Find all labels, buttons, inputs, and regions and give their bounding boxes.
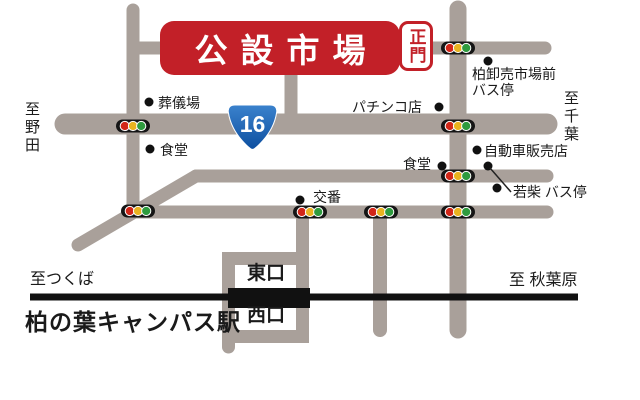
car-dealer-dot bbox=[473, 146, 482, 155]
direction-label-chiba: 至千葉 bbox=[562, 90, 578, 144]
station-name: 柏の葉キャンパス駅 bbox=[25, 303, 241, 337]
wholesale-bus-stop-dot bbox=[484, 57, 493, 66]
traffic-light-icon bbox=[364, 206, 398, 219]
traffic-light-icon bbox=[293, 206, 327, 219]
poi-label-wholesale-bus-stop: 柏卸売市場前 バス停 bbox=[472, 66, 556, 98]
traffic-light-icon bbox=[441, 120, 475, 133]
poi-label-dining-left: 食堂 bbox=[160, 142, 188, 158]
station-east-exit: 東口 bbox=[235, 266, 297, 282]
poi-label-police-box: 交番 bbox=[313, 189, 341, 205]
title-banner: 公設市場 bbox=[160, 21, 400, 75]
traffic-light-icon bbox=[121, 205, 155, 218]
traffic-light-icon bbox=[441, 206, 475, 219]
poi-label-pachinko: パチンコ店 bbox=[352, 99, 422, 115]
wakashiba-lower-dot bbox=[493, 184, 502, 193]
route-map: 16 公設市場 正門 至野田 至千葉 bbox=[0, 0, 640, 400]
route16-number: 16 bbox=[240, 111, 266, 137]
funeral-hall-dot bbox=[145, 98, 154, 107]
dining-left-dot bbox=[146, 145, 155, 154]
poi-label-funeral-hall: 葬儀場 bbox=[158, 95, 200, 111]
traffic-light-icon bbox=[441, 42, 475, 55]
main-gate-badge: 正門 bbox=[399, 21, 433, 71]
poi-label-wholesale-bus-stop-line1: 柏卸売市場前 bbox=[472, 66, 556, 82]
direction-label-tsukuba: 至つくば bbox=[30, 272, 94, 288]
poi-label-car-dealer: 自動車販売店 bbox=[484, 143, 568, 159]
poi-label-wholesale-bus-stop-line2: バス停 bbox=[472, 82, 556, 98]
poi-label-dining-right: 食堂 bbox=[403, 156, 431, 172]
route16-shield-icon: 16 bbox=[228, 105, 277, 150]
direction-label-akihabara: 至 秋葉原 bbox=[509, 273, 577, 289]
traffic-light-icon bbox=[441, 170, 475, 183]
traffic-light-icon bbox=[116, 120, 150, 133]
poi-label-wakashiba-bus-stop: 若柴 バス停 bbox=[513, 184, 587, 200]
station-west-exit: 西口 bbox=[235, 308, 297, 324]
pachinko-dot bbox=[435, 103, 444, 112]
dining-right-dot bbox=[438, 162, 447, 171]
direction-label-noda: 至野田 bbox=[23, 101, 39, 155]
police-box-dot bbox=[296, 196, 305, 205]
